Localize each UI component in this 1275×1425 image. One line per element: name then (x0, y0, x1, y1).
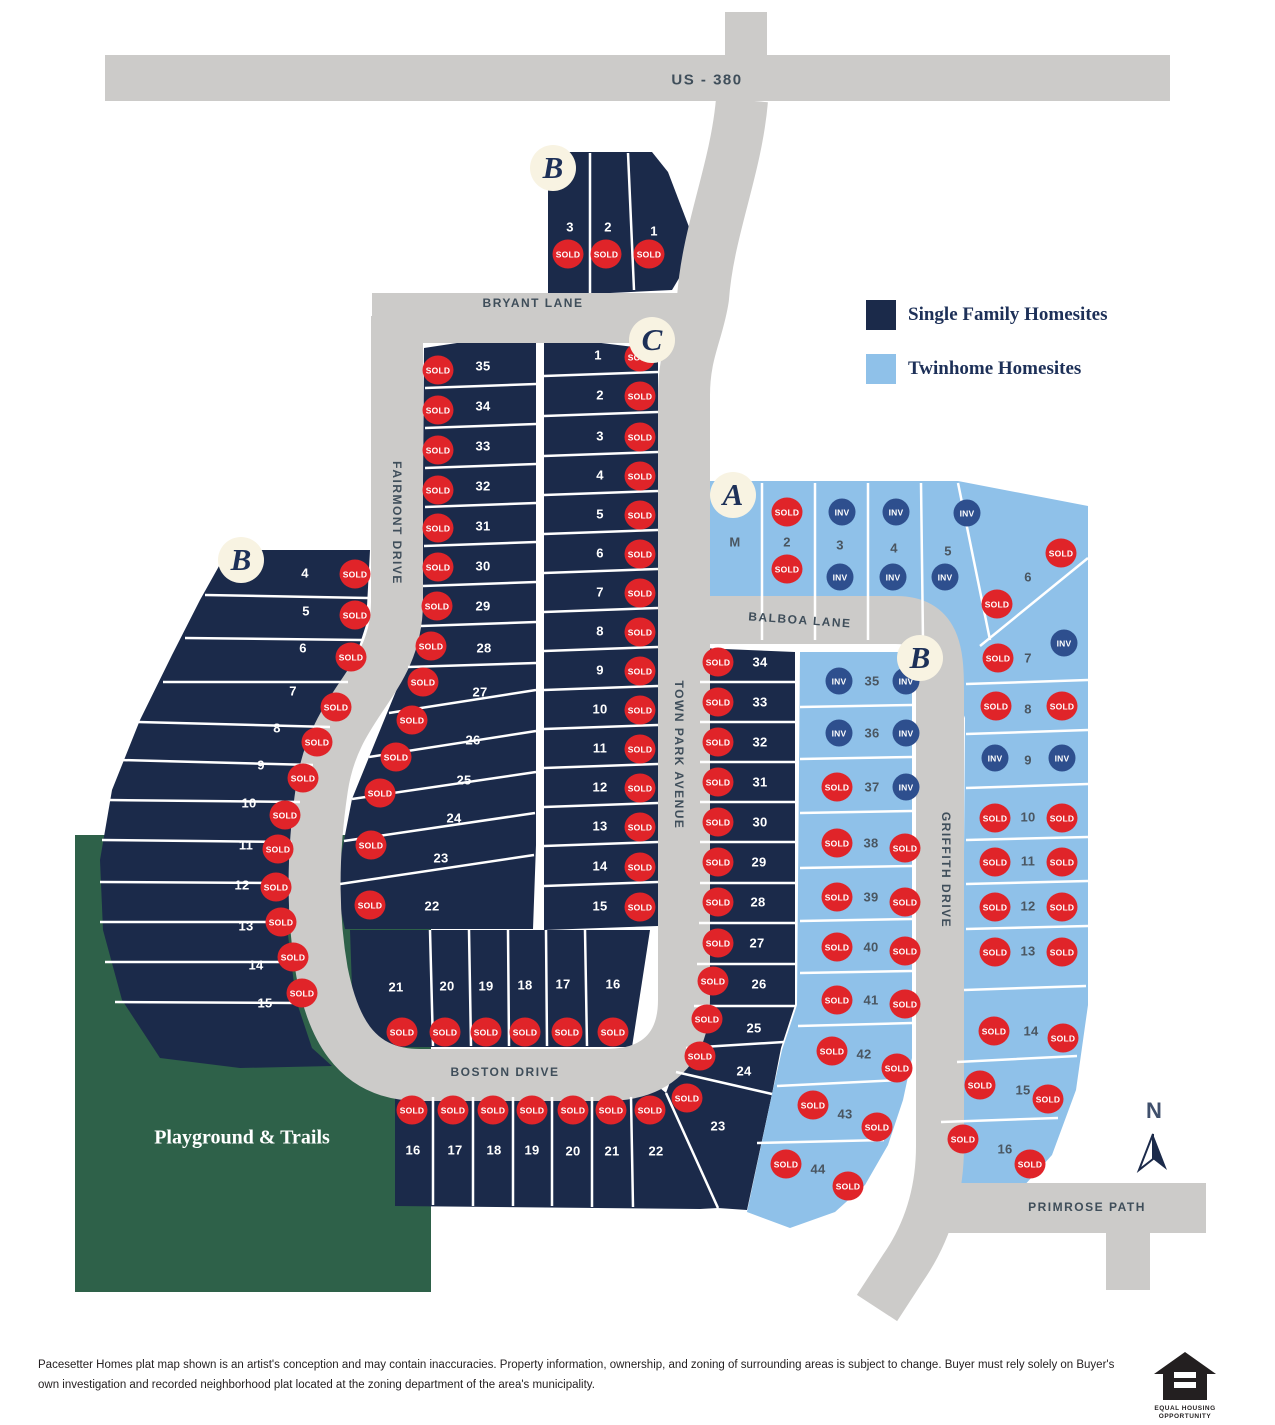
sold-badge: SOLD (397, 706, 428, 735)
road-label-primrose-path: PRIMROSE PATH (1028, 1200, 1146, 1214)
sold-badge: SOLD (979, 1017, 1010, 1046)
sold-badge: SOLD (981, 692, 1012, 721)
plat-map: Single Family Homesites Twinhome Homesit… (0, 0, 1275, 1425)
inv-badge: INV (932, 564, 959, 591)
legend: Single Family Homesites Twinhome Homesit… (866, 300, 1107, 408)
equal-housing-logo: EQUAL HOUSING OPPORTUNITY (1152, 1352, 1218, 1422)
sold-badge: SOLD (980, 893, 1011, 922)
road-label-town-park-avenue: TOWN PARK AVENUE (672, 681, 686, 830)
sold-badge: SOLD (278, 943, 309, 972)
single-family-swatch (866, 300, 896, 330)
sold-badge: SOLD (983, 644, 1014, 673)
sold-badge: SOLD (423, 356, 454, 385)
sold-badge: SOLD (478, 1096, 509, 1125)
sold-badge: SOLD (634, 240, 665, 269)
sold-badge: SOLD (817, 1037, 848, 1066)
sold-badge: SOLD (1047, 804, 1078, 833)
disclaimer: Pacesetter Homes plat map shown is an ar… (38, 1355, 1128, 1395)
road-label-bryant-lane: BRYANT LANE (483, 296, 584, 310)
sold-badge: SOLD (772, 498, 803, 527)
sold-badge: SOLD (1048, 1024, 1079, 1053)
sold-badge: SOLD (822, 883, 853, 912)
sold-badge: SOLD (948, 1125, 979, 1154)
eho-text-line-1: EQUAL HOUSING (1152, 1405, 1218, 1413)
sold-badge: SOLD (423, 436, 454, 465)
sold-badge: SOLD (288, 764, 319, 793)
legend-label: Single Family Homesites (908, 304, 1107, 326)
sold-badge: SOLD (625, 657, 656, 686)
sold-badge: SOLD (625, 462, 656, 491)
twinhome-swatch (866, 354, 896, 384)
sold-badge: SOLD (625, 579, 656, 608)
sold-badge: SOLD (263, 835, 294, 864)
sold-badge: SOLD (703, 768, 734, 797)
sold-badge: SOLD (397, 1096, 428, 1125)
sold-badge: SOLD (703, 929, 734, 958)
disclaimer-line-1: Pacesetter Homes plat map shown is an ar… (38, 1355, 1128, 1375)
sold-badge: SOLD (422, 592, 453, 621)
section-marker-a: A (710, 472, 756, 518)
inv-badge: INV (893, 720, 920, 747)
sold-badge: SOLD (822, 986, 853, 1015)
sold-badge: SOLD (625, 735, 656, 764)
inv-badge: INV (954, 500, 981, 527)
sold-badge: SOLD (336, 643, 367, 672)
sold-badge: SOLD (591, 240, 622, 269)
sold-badge: SOLD (355, 891, 386, 920)
sold-badge: SOLD (302, 728, 333, 757)
sold-badge: SOLD (261, 873, 292, 902)
sold-badge: SOLD (980, 804, 1011, 833)
inv-badge: INV (880, 564, 907, 591)
sold-badge: SOLD (771, 1150, 802, 1179)
sold-badge: SOLD (558, 1096, 589, 1125)
sold-badge: SOLD (625, 382, 656, 411)
north-arrow-icon (1139, 1134, 1167, 1170)
sold-badge: SOLD (703, 688, 734, 717)
sold-badge: SOLD (471, 1018, 502, 1047)
sold-badge: SOLD (381, 743, 412, 772)
sold-badge: SOLD (365, 779, 396, 808)
inv-badge: INV (826, 668, 853, 695)
sold-badge: SOLD (890, 834, 921, 863)
sold-badge: SOLD (423, 514, 454, 543)
sold-badge: SOLD (833, 1172, 864, 1201)
section-marker-b: B (530, 145, 576, 191)
sold-badge: SOLD (510, 1018, 541, 1047)
sold-badge: SOLD (416, 632, 447, 661)
sold-badge: SOLD (1047, 893, 1078, 922)
section-marker-b: B (218, 537, 264, 583)
sold-badge: SOLD (703, 648, 734, 677)
sold-badge: SOLD (980, 848, 1011, 877)
legend-item-single-family: Single Family Homesites (866, 300, 1107, 330)
sold-badge: SOLD (517, 1096, 548, 1125)
sold-badge: SOLD (965, 1071, 996, 1100)
sold-badge: SOLD (890, 990, 921, 1019)
sold-badge: SOLD (266, 908, 297, 937)
sold-badge: SOLD (387, 1018, 418, 1047)
sold-badge: SOLD (692, 1005, 723, 1034)
sold-badge: SOLD (596, 1096, 627, 1125)
inv-badge: INV (893, 774, 920, 801)
sold-badge: SOLD (703, 728, 734, 757)
sold-badge: SOLD (430, 1018, 461, 1047)
sold-badge: SOLD (635, 1096, 666, 1125)
inv-badge: INV (826, 720, 853, 747)
sold-badge: SOLD (822, 933, 853, 962)
disclaimer-line-2: own investigation and recorded neighborh… (38, 1375, 1128, 1395)
sold-badge: SOLD (1015, 1150, 1046, 1179)
sold-badge: SOLD (703, 808, 734, 837)
sold-badge: SOLD (423, 553, 454, 582)
sold-badge: SOLD (552, 1018, 583, 1047)
section-marker-c: C (629, 317, 675, 363)
sold-badge: SOLD (408, 668, 439, 697)
sold-badge: SOLD (625, 501, 656, 530)
sold-badge: SOLD (1047, 848, 1078, 877)
sold-badge: SOLD (287, 979, 318, 1008)
sold-badge: SOLD (672, 1084, 703, 1113)
inv-badge: INV (1049, 745, 1076, 772)
sold-badge: SOLD (423, 476, 454, 505)
sold-badge: SOLD (625, 853, 656, 882)
section-marker-b: B (897, 635, 943, 681)
sold-badge: SOLD (625, 696, 656, 725)
sold-badge: SOLD (598, 1018, 629, 1047)
inv-badge: INV (829, 499, 856, 526)
sold-badge: SOLD (625, 774, 656, 803)
north-letter: N (1130, 1098, 1178, 1124)
sold-badge: SOLD (862, 1113, 893, 1142)
sold-badge: SOLD (822, 829, 853, 858)
sold-badge: SOLD (703, 888, 734, 917)
sold-badge: SOLD (1047, 938, 1078, 967)
sold-badge: SOLD (1033, 1085, 1064, 1114)
sold-badge: SOLD (685, 1042, 716, 1071)
road-label-griffith-drive: GRIFFITH DRIVE (939, 812, 953, 928)
sold-badge: SOLD (625, 540, 656, 569)
inv-badge: INV (982, 745, 1009, 772)
road-label-boston-drive: BOSTON DRIVE (450, 1065, 559, 1079)
road-label-fairmont-drive: FAIRMONT DRIVE (390, 461, 404, 585)
inv-badge: INV (827, 564, 854, 591)
sold-badge: SOLD (553, 240, 584, 269)
sold-badge: SOLD (1046, 539, 1077, 568)
equal-housing-house-icon (1154, 1352, 1216, 1400)
sold-badge: SOLD (340, 560, 371, 589)
sold-badge: SOLD (625, 618, 656, 647)
inv-badge: INV (883, 499, 910, 526)
sold-badge: SOLD (882, 1054, 913, 1083)
sold-badge: SOLD (270, 801, 301, 830)
sold-badge: SOLD (703, 848, 734, 877)
legend-label: Twinhome Homesites (908, 358, 1081, 380)
sold-badge: SOLD (1047, 692, 1078, 721)
eho-text-line-2: OPPORTUNITY (1152, 1413, 1218, 1421)
legend-item-twinhome: Twinhome Homesites (866, 354, 1107, 384)
sold-badge: SOLD (890, 888, 921, 917)
playground-label: Playground & Trails (154, 1127, 330, 1150)
road-label-us-380: US - 380 (671, 72, 742, 89)
sold-badge: SOLD (438, 1096, 469, 1125)
sold-badge: SOLD (772, 555, 803, 584)
sold-badge: SOLD (698, 967, 729, 996)
sold-badge: SOLD (982, 590, 1013, 619)
sold-badge: SOLD (340, 601, 371, 630)
sold-badge: SOLD (625, 423, 656, 452)
north-indicator: N (1130, 1098, 1178, 1124)
sold-badge: SOLD (625, 893, 656, 922)
inv-badge: INV (1051, 630, 1078, 657)
sold-badge: SOLD (798, 1091, 829, 1120)
sold-badge: SOLD (822, 773, 853, 802)
sold-badge: SOLD (625, 813, 656, 842)
sold-badge: SOLD (356, 831, 387, 860)
sold-badge: SOLD (321, 693, 352, 722)
sold-badge: SOLD (423, 396, 454, 425)
sold-badge: SOLD (980, 938, 1011, 967)
sold-badge: SOLD (890, 937, 921, 966)
